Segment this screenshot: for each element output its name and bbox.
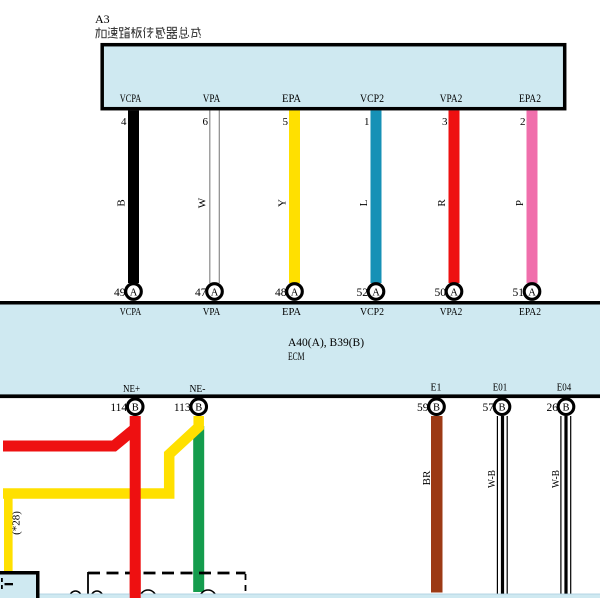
svg-text:R: R: [436, 199, 448, 207]
svg-text:BR: BR: [421, 470, 433, 485]
svg-text:A: A: [372, 288, 380, 299]
svg-text:A: A: [291, 288, 299, 299]
svg-text:5: 5: [283, 116, 289, 128]
svg-text:A3: A3: [95, 12, 110, 26]
svg-text:VPA: VPA: [203, 306, 221, 318]
svg-text:59: 59: [417, 402, 429, 414]
svg-text:B: B: [498, 403, 505, 414]
svg-text:W-B: W-B: [486, 470, 498, 488]
svg-text:A: A: [211, 288, 219, 299]
svg-text:57: 57: [483, 402, 495, 414]
svg-text:49: 49: [114, 287, 126, 299]
svg-text:VPA2: VPA2: [440, 306, 463, 318]
svg-text:47: 47: [195, 287, 207, 299]
svg-text:A: A: [528, 288, 536, 299]
svg-text:W-B: W-B: [550, 470, 562, 488]
svg-text:NE-: NE-: [190, 383, 206, 395]
svg-text:VCPA: VCPA: [120, 93, 142, 105]
svg-text:NE+: NE+: [123, 383, 140, 395]
svg-text:26: 26: [547, 402, 559, 414]
svg-text:A: A: [450, 288, 458, 299]
svg-text:B: B: [562, 403, 569, 414]
svg-text:50: 50: [435, 287, 447, 299]
svg-text:6: 6: [203, 116, 209, 128]
svg-text:1: 1: [364, 116, 370, 128]
svg-text:2: 2: [520, 116, 526, 128]
svg-text:113: 113: [174, 402, 191, 414]
svg-text:L: L: [358, 199, 370, 206]
svg-text:E04: E04: [557, 382, 572, 394]
svg-text:VCP2: VCP2: [360, 93, 384, 105]
svg-text:B: B: [195, 403, 202, 414]
svg-text:114: 114: [110, 402, 127, 414]
svg-text:4: 4: [121, 116, 127, 128]
svg-text:A: A: [130, 288, 138, 299]
svg-text:3: 3: [442, 116, 448, 128]
svg-text:EPA: EPA: [282, 93, 302, 105]
svg-text:B: B: [132, 403, 139, 414]
svg-text:B: B: [433, 403, 440, 414]
svg-text:52: 52: [357, 287, 369, 299]
svg-text:48: 48: [275, 287, 287, 299]
svg-text:E01: E01: [493, 382, 508, 394]
svg-text:ECM: ECM: [288, 351, 305, 363]
svg-text:EPA2: EPA2: [519, 93, 541, 105]
svg-text:B: B: [116, 199, 128, 206]
svg-text:P: P: [514, 200, 526, 206]
svg-text:Y: Y: [277, 199, 289, 207]
svg-text:A40(A), B39(B): A40(A), B39(B): [288, 337, 364, 349]
svg-text:EPA: EPA: [282, 306, 301, 318]
svg-text:E1: E1: [431, 382, 442, 394]
svg-text:VPA: VPA: [203, 93, 221, 105]
svg-text:VCP2: VCP2: [360, 306, 384, 318]
svg-text:EPA2: EPA2: [519, 306, 541, 318]
svg-text:51: 51: [513, 287, 525, 299]
svg-text:W: W: [197, 197, 209, 208]
svg-text:VPA2: VPA2: [440, 93, 463, 105]
svg-text:VCPA: VCPA: [120, 306, 142, 318]
svg-text:(*28): (*28): [11, 511, 23, 535]
